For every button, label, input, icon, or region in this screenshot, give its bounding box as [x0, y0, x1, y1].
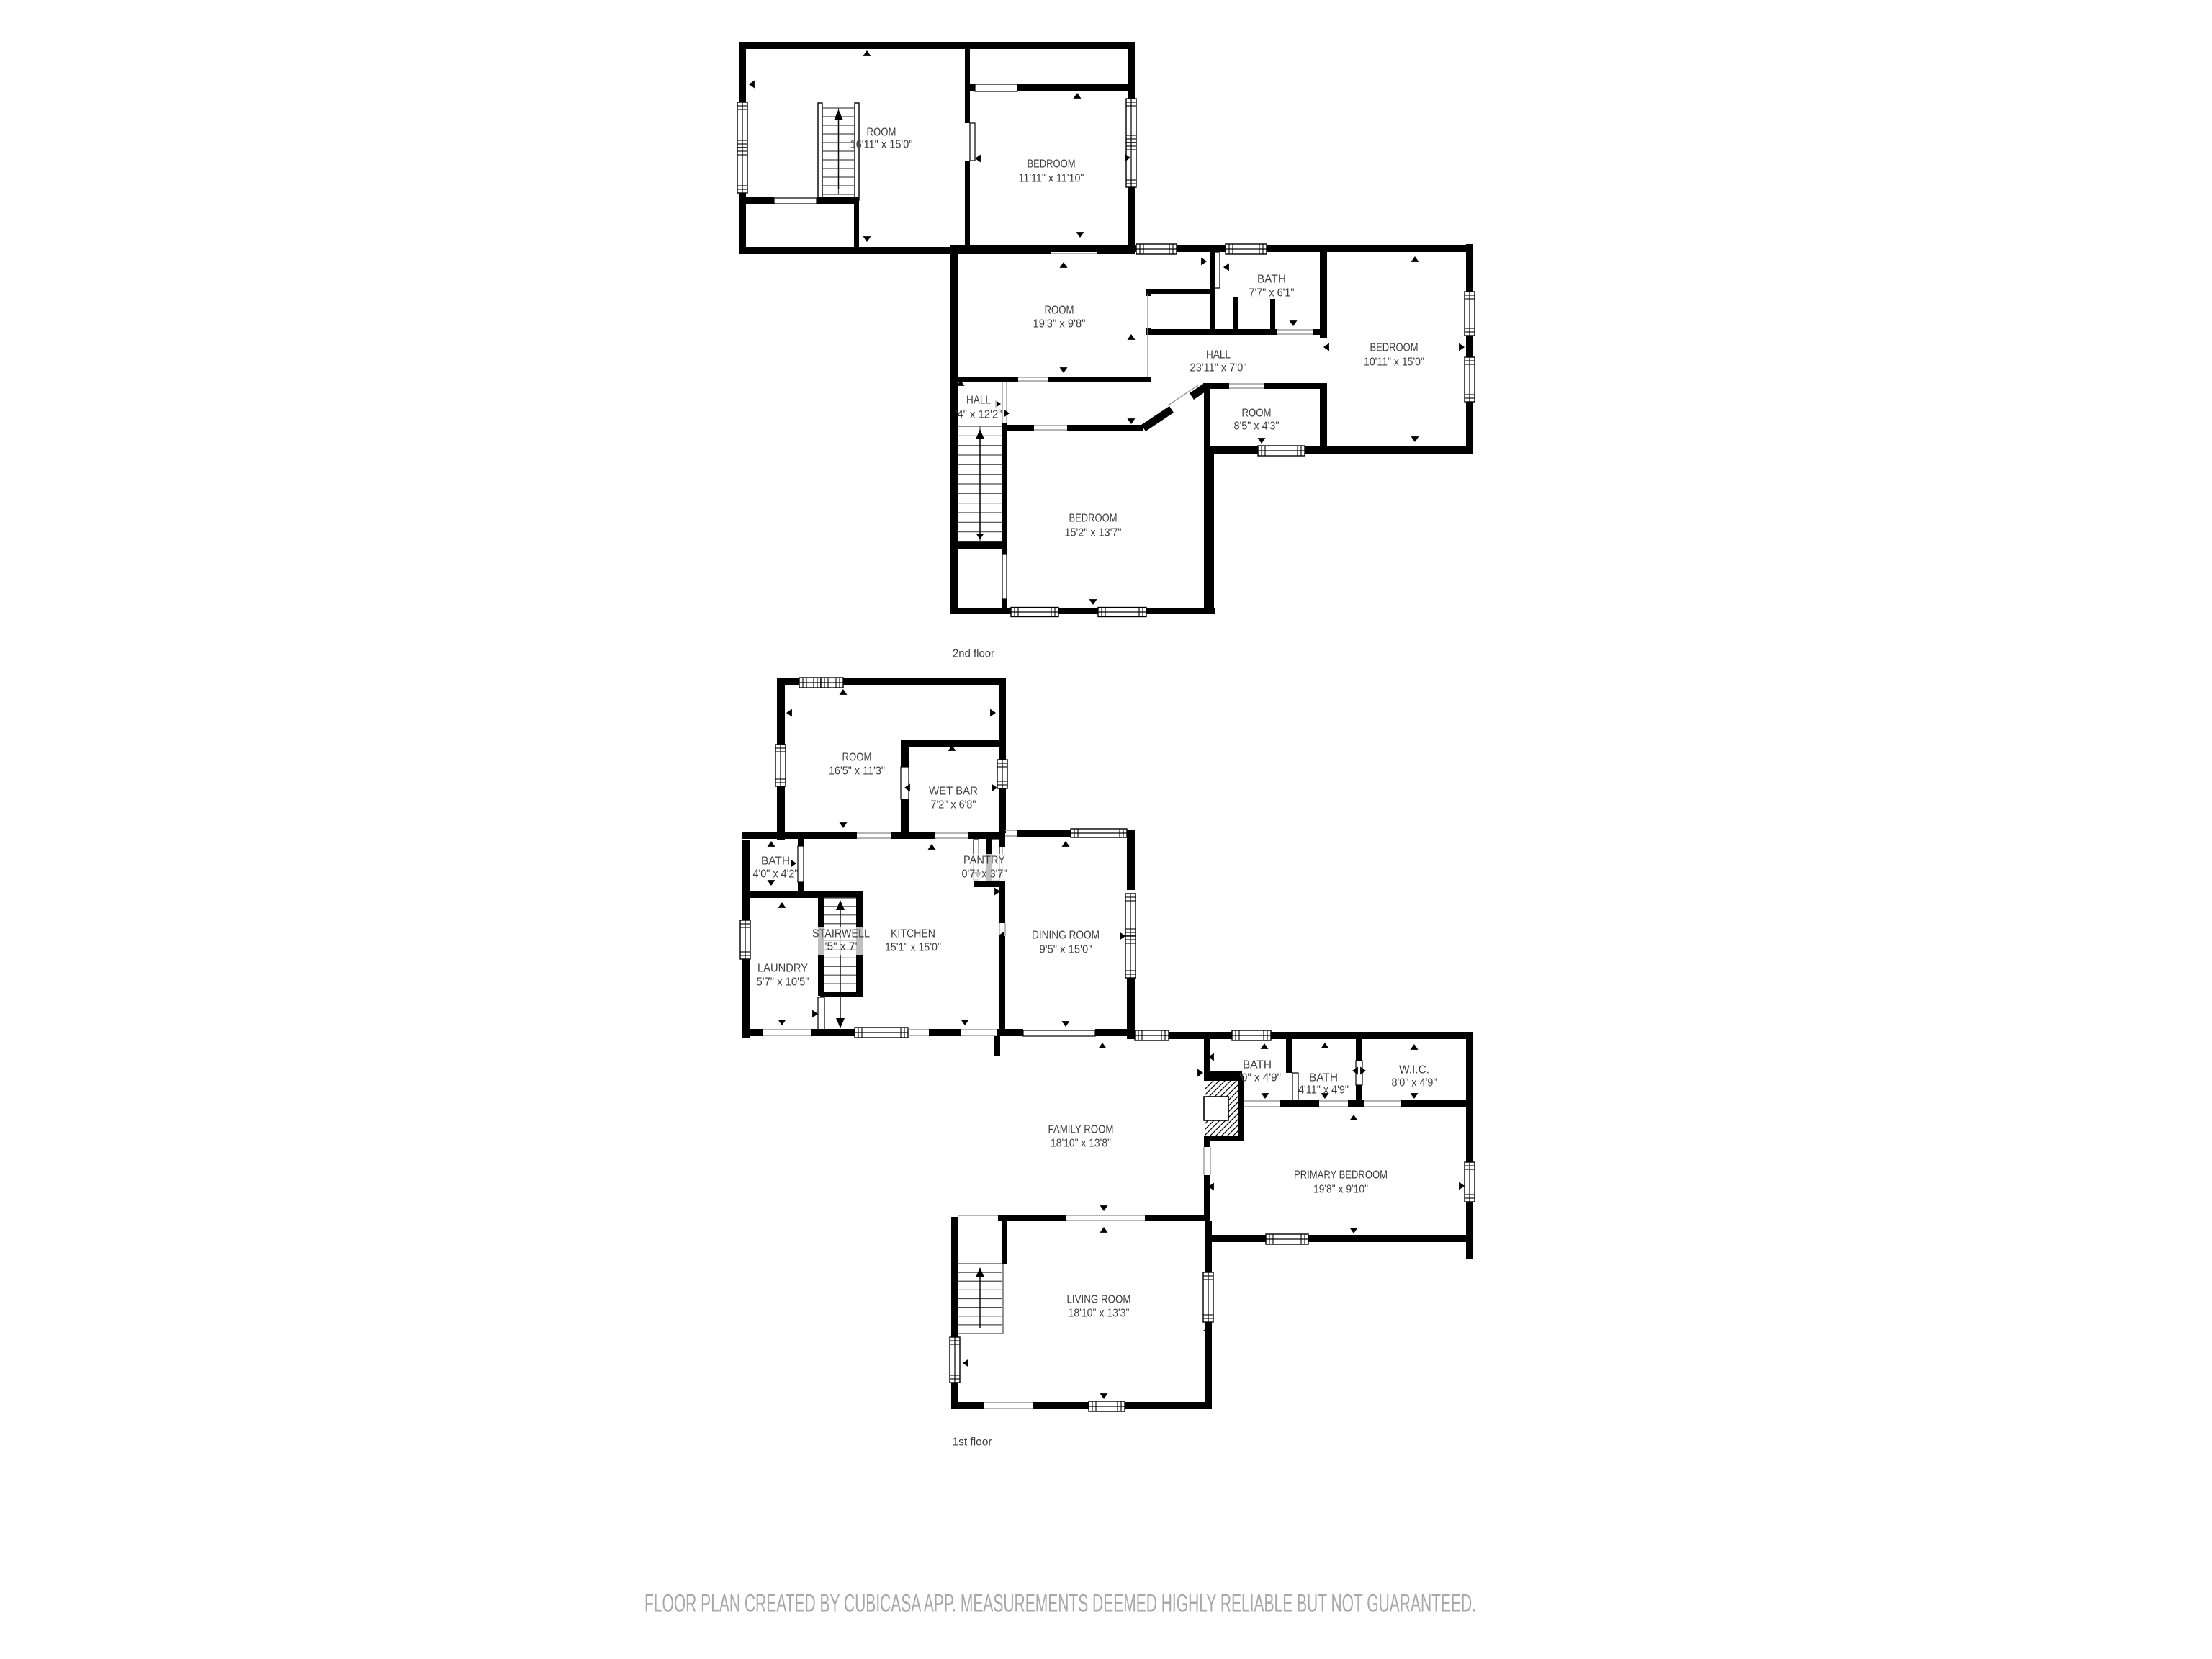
svg-text:ROOM: ROOM — [1242, 408, 1272, 420]
svg-text:18'10" x 13'8": 18'10" x 13'8" — [1051, 1138, 1111, 1150]
svg-text:'5" x 7': '5" x 7' — [825, 941, 858, 953]
svg-text:HALL: HALL — [966, 395, 991, 407]
svg-text:ROOM: ROOM — [842, 752, 872, 764]
svg-text:STAIRWELL: STAIRWELL — [812, 928, 870, 940]
svg-text:KITCHEN: KITCHEN — [891, 928, 935, 940]
svg-text:'0" x 4'9": '0" x 4'9" — [1239, 1072, 1281, 1084]
svg-text:15'2" x 13'7": 15'2" x 13'7" — [1065, 527, 1122, 539]
svg-text:BEDROOM: BEDROOM — [1370, 342, 1419, 354]
svg-text:'4" x 12'2": '4" x 12'2" — [956, 409, 1002, 421]
svg-text:W.I.C.: W.I.C. — [1399, 1064, 1429, 1076]
svg-text:HALL: HALL — [1206, 349, 1231, 361]
svg-text:PANTRY: PANTRY — [963, 855, 1005, 867]
svg-text:19'8" x 9'10": 19'8" x 9'10" — [1313, 1184, 1368, 1196]
svg-text:LAUNDRY: LAUNDRY — [757, 963, 808, 975]
svg-text:2nd floor: 2nd floor — [953, 648, 995, 660]
svg-text:4'11" x 4'9": 4'11" x 4'9" — [1298, 1084, 1349, 1097]
svg-text:23'11" x 7'0": 23'11" x 7'0" — [1190, 362, 1247, 374]
svg-text:DINING ROOM: DINING ROOM — [1032, 930, 1100, 942]
svg-text:ROOM: ROOM — [1045, 305, 1074, 317]
svg-text:7'7" x 6'1": 7'7" x 6'1" — [1249, 287, 1295, 300]
svg-text:0'7" x 3'7": 0'7" x 3'7" — [962, 868, 1007, 881]
svg-text:BEDROOM: BEDROOM — [1028, 158, 1076, 171]
svg-text:BATH: BATH — [761, 855, 790, 868]
svg-text:10'11" x 15'0": 10'11" x 15'0" — [1364, 356, 1424, 369]
svg-text:BATH: BATH — [1257, 274, 1286, 286]
svg-text:FLOOR PLAN CREATED BY CUBICASA: FLOOR PLAN CREATED BY CUBICASA APP. MEAS… — [644, 1590, 1476, 1618]
svg-text:8'0" x 4'9": 8'0" x 4'9" — [1392, 1077, 1437, 1089]
svg-text:1st floor: 1st floor — [953, 1437, 993, 1449]
svg-text:4'0" x 4'2": 4'0" x 4'2" — [753, 868, 799, 881]
svg-text:19'3" x 9'8": 19'3" x 9'8" — [1033, 318, 1086, 331]
svg-text:ROOM: ROOM — [867, 127, 896, 139]
svg-text:5'7" x 10'5": 5'7" x 10'5" — [757, 976, 809, 989]
svg-text:7'2" x 6'8": 7'2" x 6'8" — [931, 799, 976, 811]
svg-text:BATH: BATH — [1309, 1072, 1338, 1084]
svg-text:8'5" x 4'3": 8'5" x 4'3" — [1234, 421, 1280, 433]
svg-text:18'10" x 13'3": 18'10" x 13'3" — [1069, 1308, 1130, 1320]
svg-text:BEDROOM: BEDROOM — [1069, 513, 1118, 525]
svg-text:LIVING ROOM: LIVING ROOM — [1067, 1294, 1131, 1306]
svg-text:PRIMARY BEDROOM: PRIMARY BEDROOM — [1294, 1169, 1388, 1182]
svg-text:16'5" x 11'3": 16'5" x 11'3" — [829, 765, 885, 778]
svg-text:WET BAR: WET BAR — [929, 786, 978, 798]
svg-text:9'5" x 15'0": 9'5" x 15'0" — [1040, 944, 1092, 956]
svg-text:11'11" x 11'10": 11'11" x 11'10" — [1019, 173, 1084, 185]
svg-text:16'11" x 15'0": 16'11" x 15'0" — [850, 139, 913, 151]
svg-text:FAMILY ROOM: FAMILY ROOM — [1048, 1124, 1114, 1136]
svg-text:BATH: BATH — [1243, 1059, 1272, 1071]
svg-text:15'1" x 15'0": 15'1" x 15'0" — [885, 942, 941, 954]
